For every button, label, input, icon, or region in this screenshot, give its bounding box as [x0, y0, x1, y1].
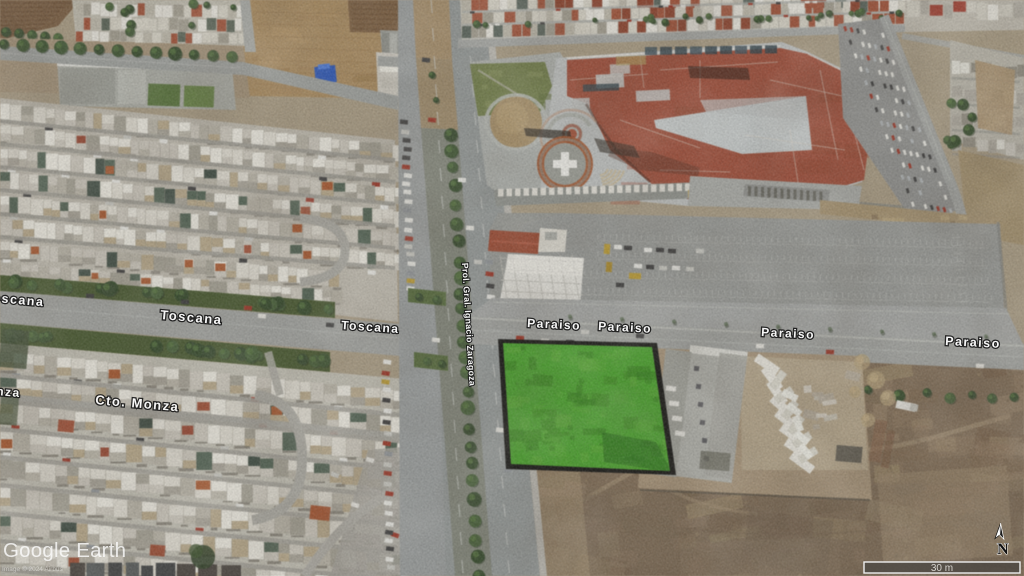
- svg-text:N: N: [997, 541, 1009, 558]
- svg-text:30 m: 30 m: [931, 563, 953, 574]
- svg-text:Paraiso: Paraiso: [761, 325, 816, 342]
- svg-text:Google Earth: Google Earth: [3, 539, 126, 562]
- svg-text:Image © 2024 Airbus: Image © 2024 Airbus: [2, 565, 64, 573]
- svg-text:nza: nza: [0, 384, 21, 400]
- svg-text:Paraiso: Paraiso: [945, 334, 1001, 351]
- svg-text:Paraiso: Paraiso: [598, 319, 653, 336]
- svg-text:Paraiso: Paraiso: [527, 316, 582, 333]
